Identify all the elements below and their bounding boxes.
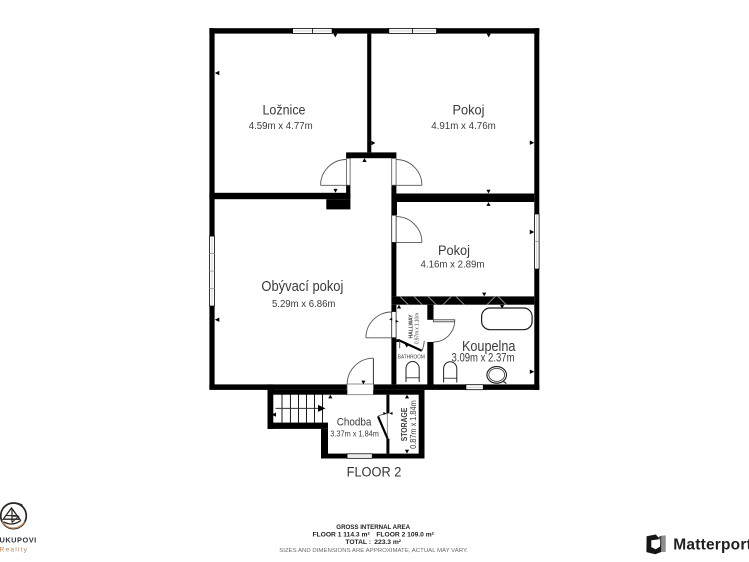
svg-text:Matterport: Matterport	[673, 536, 749, 553]
svg-text:STORAGE: STORAGE	[399, 407, 409, 441]
svg-text:BATHROOM: BATHROOM	[398, 354, 425, 360]
svg-text:Pokoj: Pokoj	[453, 103, 485, 118]
svg-text:4.59m x 4.77m: 4.59m x 4.77m	[249, 121, 313, 132]
svg-text:SIZES AND DIMENSIONS ARE APPRO: SIZES AND DIMENSIONS ARE APPROXIMATE, AC…	[279, 548, 468, 554]
svg-text:4.91m x 4.76m: 4.91m x 4.76m	[431, 121, 496, 132]
svg-text:Pokoj: Pokoj	[438, 243, 470, 258]
svg-text:3.37m x 1.84m: 3.37m x 1.84m	[330, 430, 379, 439]
svg-text:0.87m x 1.84m: 0.87m x 1.84m	[409, 400, 418, 449]
svg-text:TOTAL : 223.3 m²: TOTAL : 223.3 m²	[345, 539, 401, 546]
svg-text:Obývací pokoj: Obývací pokoj	[261, 279, 343, 295]
svg-text:3.09m x 2.37m: 3.09m x 2.37m	[452, 350, 515, 364]
svg-text:HALLWAY: HALLWAY	[408, 314, 414, 338]
svg-text:UKUPOVI: UKUPOVI	[0, 535, 37, 544]
svg-text:FLOOR 1 114.3 m² FLOOR 2 109.: FLOOR 1 114.3 m² FLOOR 2 109.0 m²	[313, 532, 435, 539]
svg-text:Reality: Reality	[0, 547, 28, 554]
svg-text:0.97m x 1.10m: 0.97m x 1.10m	[415, 313, 421, 344]
svg-text:4.16m x 2.89m: 4.16m x 2.89m	[421, 259, 485, 270]
svg-text:FLOOR 2: FLOOR 2	[347, 464, 402, 479]
svg-text:Chodba: Chodba	[337, 416, 372, 428]
svg-text:Ložnice: Ložnice	[263, 103, 306, 118]
svg-text:5.29m x 6.86m: 5.29m x 6.86m	[272, 299, 336, 310]
svg-text:GROSS INTERNAL AREA: GROSS INTERNAL AREA	[336, 524, 410, 531]
